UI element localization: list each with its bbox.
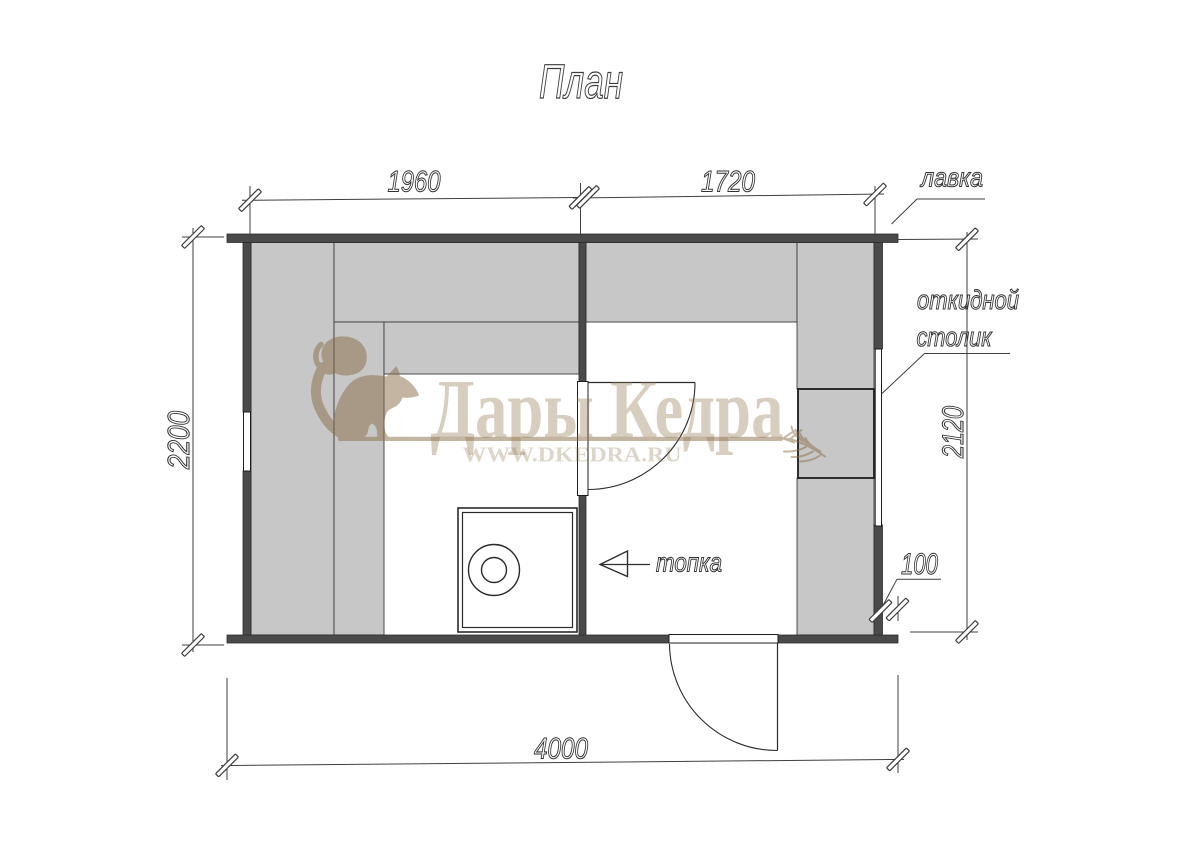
svg-text:топка: топка	[656, 548, 722, 578]
svg-text:2200: 2200	[161, 411, 196, 470]
svg-text:2120: 2120	[937, 406, 970, 459]
svg-text:1720: 1720	[701, 166, 755, 199]
svg-text:4000: 4000	[534, 733, 588, 766]
svg-text:лавка: лавка	[919, 163, 983, 193]
svg-text:100: 100	[901, 548, 938, 581]
svg-text:WWW.DKEDRA.RU: WWW.DKEDRA.RU	[463, 443, 682, 467]
svg-text:столик: столик	[917, 322, 993, 352]
svg-text:откидной: откидной	[917, 285, 1019, 315]
svg-text:План: План	[539, 56, 623, 109]
svg-text:1960: 1960	[388, 166, 441, 199]
